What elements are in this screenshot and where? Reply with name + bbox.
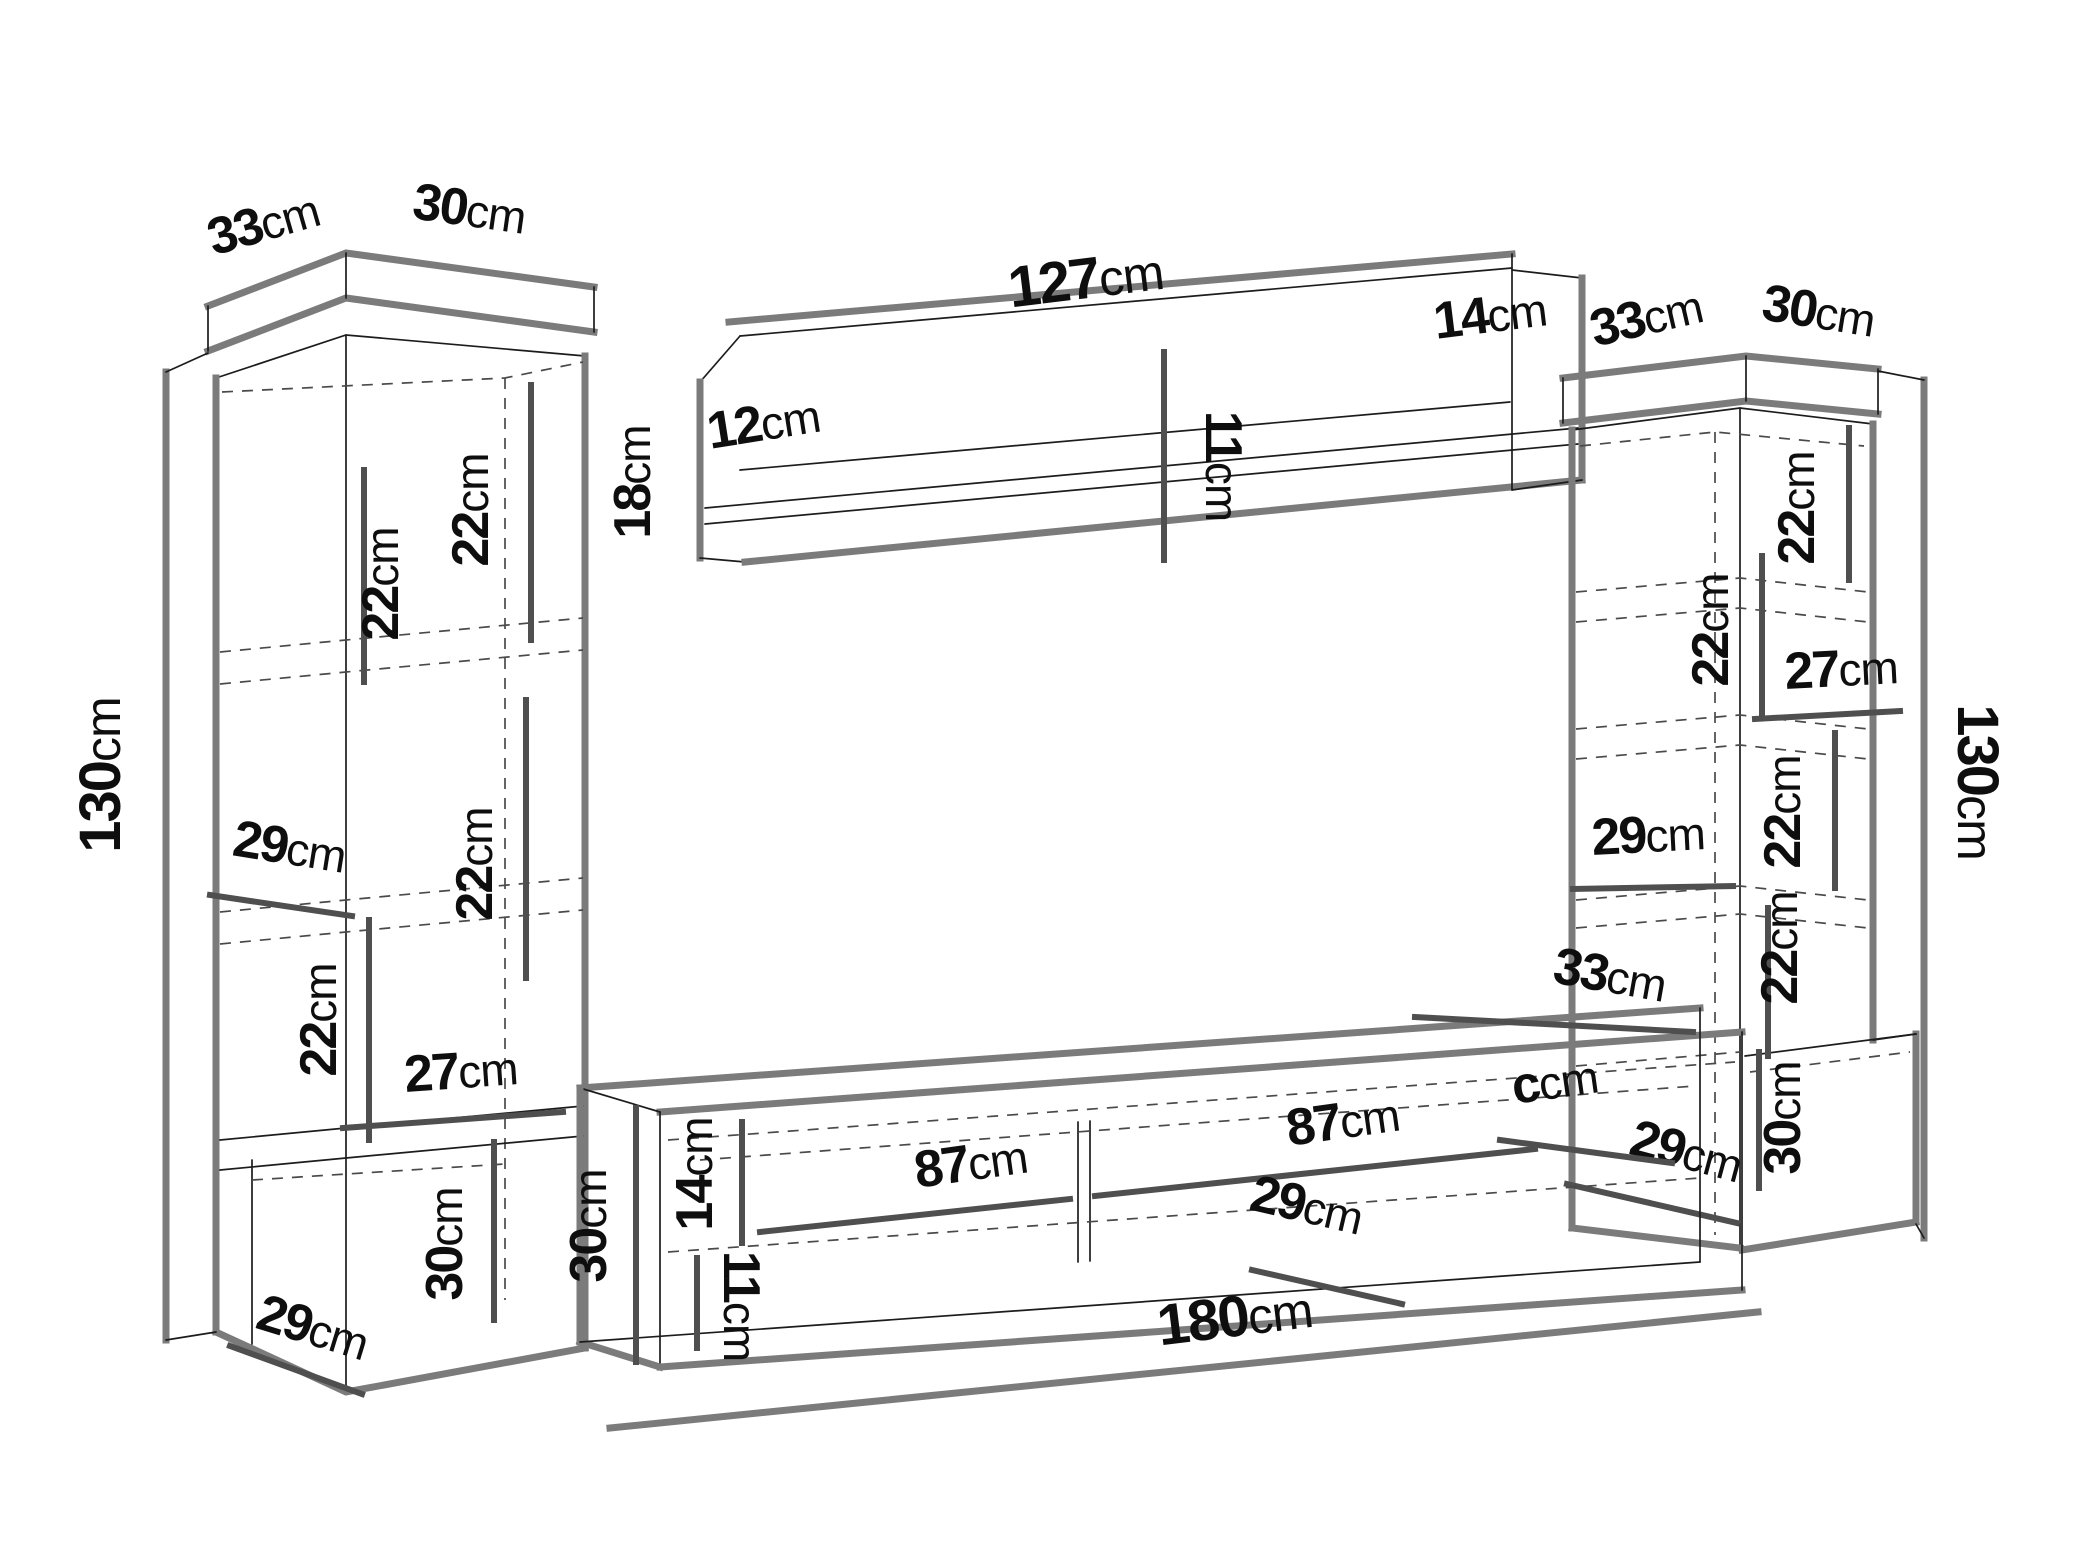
- wall-shelf: 127cm 14cm 18cm 12cm 11cm: [604, 237, 1582, 562]
- dim-right-cabinet-base-depth: 29cm: [1624, 1109, 1748, 1194]
- dim-left-cabinet-niche-width: 27cm: [402, 1038, 519, 1104]
- dim-tv-stand-length: 180cm: [1154, 1275, 1316, 1358]
- dim-left-cabinet-shelf-gap-top: 22cm: [442, 453, 500, 566]
- dim-right-cabinet-top-width: 30cm: [1758, 274, 1879, 349]
- dim-wall-shelf-height: 18cm: [604, 425, 662, 538]
- dim-right-cabinet-interior-width: 29cm: [1590, 803, 1706, 867]
- dim-wall-shelf-length: 127cm: [1005, 237, 1167, 320]
- right-cabinet-top-slab: [1563, 356, 1878, 423]
- dim-wall-shelf-depth: 12cm: [703, 386, 824, 461]
- dim-right-cabinet-shelf-gap-middle: 22cm: [1754, 755, 1812, 868]
- left-cabinet: 33cm 30cm 130cm 22cm 22cm 22cm 29cm 22cm…: [68, 173, 594, 1394]
- right-cabinet: 33cm 30cm 130cm 22cm 22cm 27cm 22cm 29cm…: [1563, 274, 2010, 1250]
- dim-right-cabinet-niche-width: 27cm: [1783, 637, 1899, 701]
- dim-left-cabinet-shelf-gap-upper: 22cm: [352, 527, 410, 640]
- dim-left-cabinet-shelf-gap-lower: 22cm: [290, 963, 348, 1076]
- dim-tv-stand-lip-height: 11cm: [712, 1251, 770, 1361]
- dim-tv-stand-depth: 33cm: [1549, 937, 1671, 1014]
- tv-stand: 33cm 30cm 14cm 11cm 87cm 87cm 29cm ccm 1…: [560, 937, 1758, 1428]
- dim-left-cabinet-interior-width: 29cm: [229, 810, 350, 885]
- dim-left-cabinet-top-width: 30cm: [409, 173, 529, 246]
- dim-tv-stand-shelf-depth: 29cm: [1245, 1164, 1368, 1246]
- dim-right-cabinet-shelf-gap-top: 22cm: [1768, 451, 1826, 564]
- dim-tv-stand-end-height: 30cm: [560, 1169, 618, 1282]
- dim-right-cabinet-base-height: 30cm: [1754, 1061, 1812, 1174]
- dim-tv-stand-compartment-right-width: 87cm: [1283, 1085, 1403, 1158]
- dim-left-cabinet-height: 130cm: [68, 697, 133, 852]
- dim-right-cabinet-shelf-gap-upper: 22cm: [1682, 573, 1740, 686]
- diagram-canvas: 33cm 30cm 130cm 22cm 22cm 22cm 29cm 22cm…: [0, 0, 2087, 1565]
- dim-right-cabinet-top-depth: 33cm: [1585, 276, 1708, 358]
- furniture-dimension-diagram: 33cm 30cm 130cm 22cm 22cm 22cm 29cm 22cm…: [0, 0, 2087, 1565]
- left-cabinet-top-slab: [208, 253, 594, 351]
- dim-wall-shelf-end-height: 14cm: [1430, 279, 1549, 350]
- dim-wall-shelf-lip-height: 11cm: [1194, 411, 1252, 521]
- dim-tv-stand-opening-height: 14cm: [666, 1117, 724, 1230]
- dim-left-cabinet-top-depth: 33cm: [201, 180, 326, 267]
- dim-tv-stand-marker: ccm: [1508, 1046, 1601, 1115]
- dim-tv-stand-compartment-left-width: 87cm: [911, 1127, 1031, 1200]
- dim-right-cabinet-shelf-gap-lower: 22cm: [1751, 891, 1809, 1004]
- dim-left-cabinet-base-height: 30cm: [416, 1187, 474, 1300]
- dim-right-cabinet-height: 130cm: [1945, 704, 2010, 859]
- dim-left-cabinet-shelf-gap-middle: 22cm: [446, 807, 504, 920]
